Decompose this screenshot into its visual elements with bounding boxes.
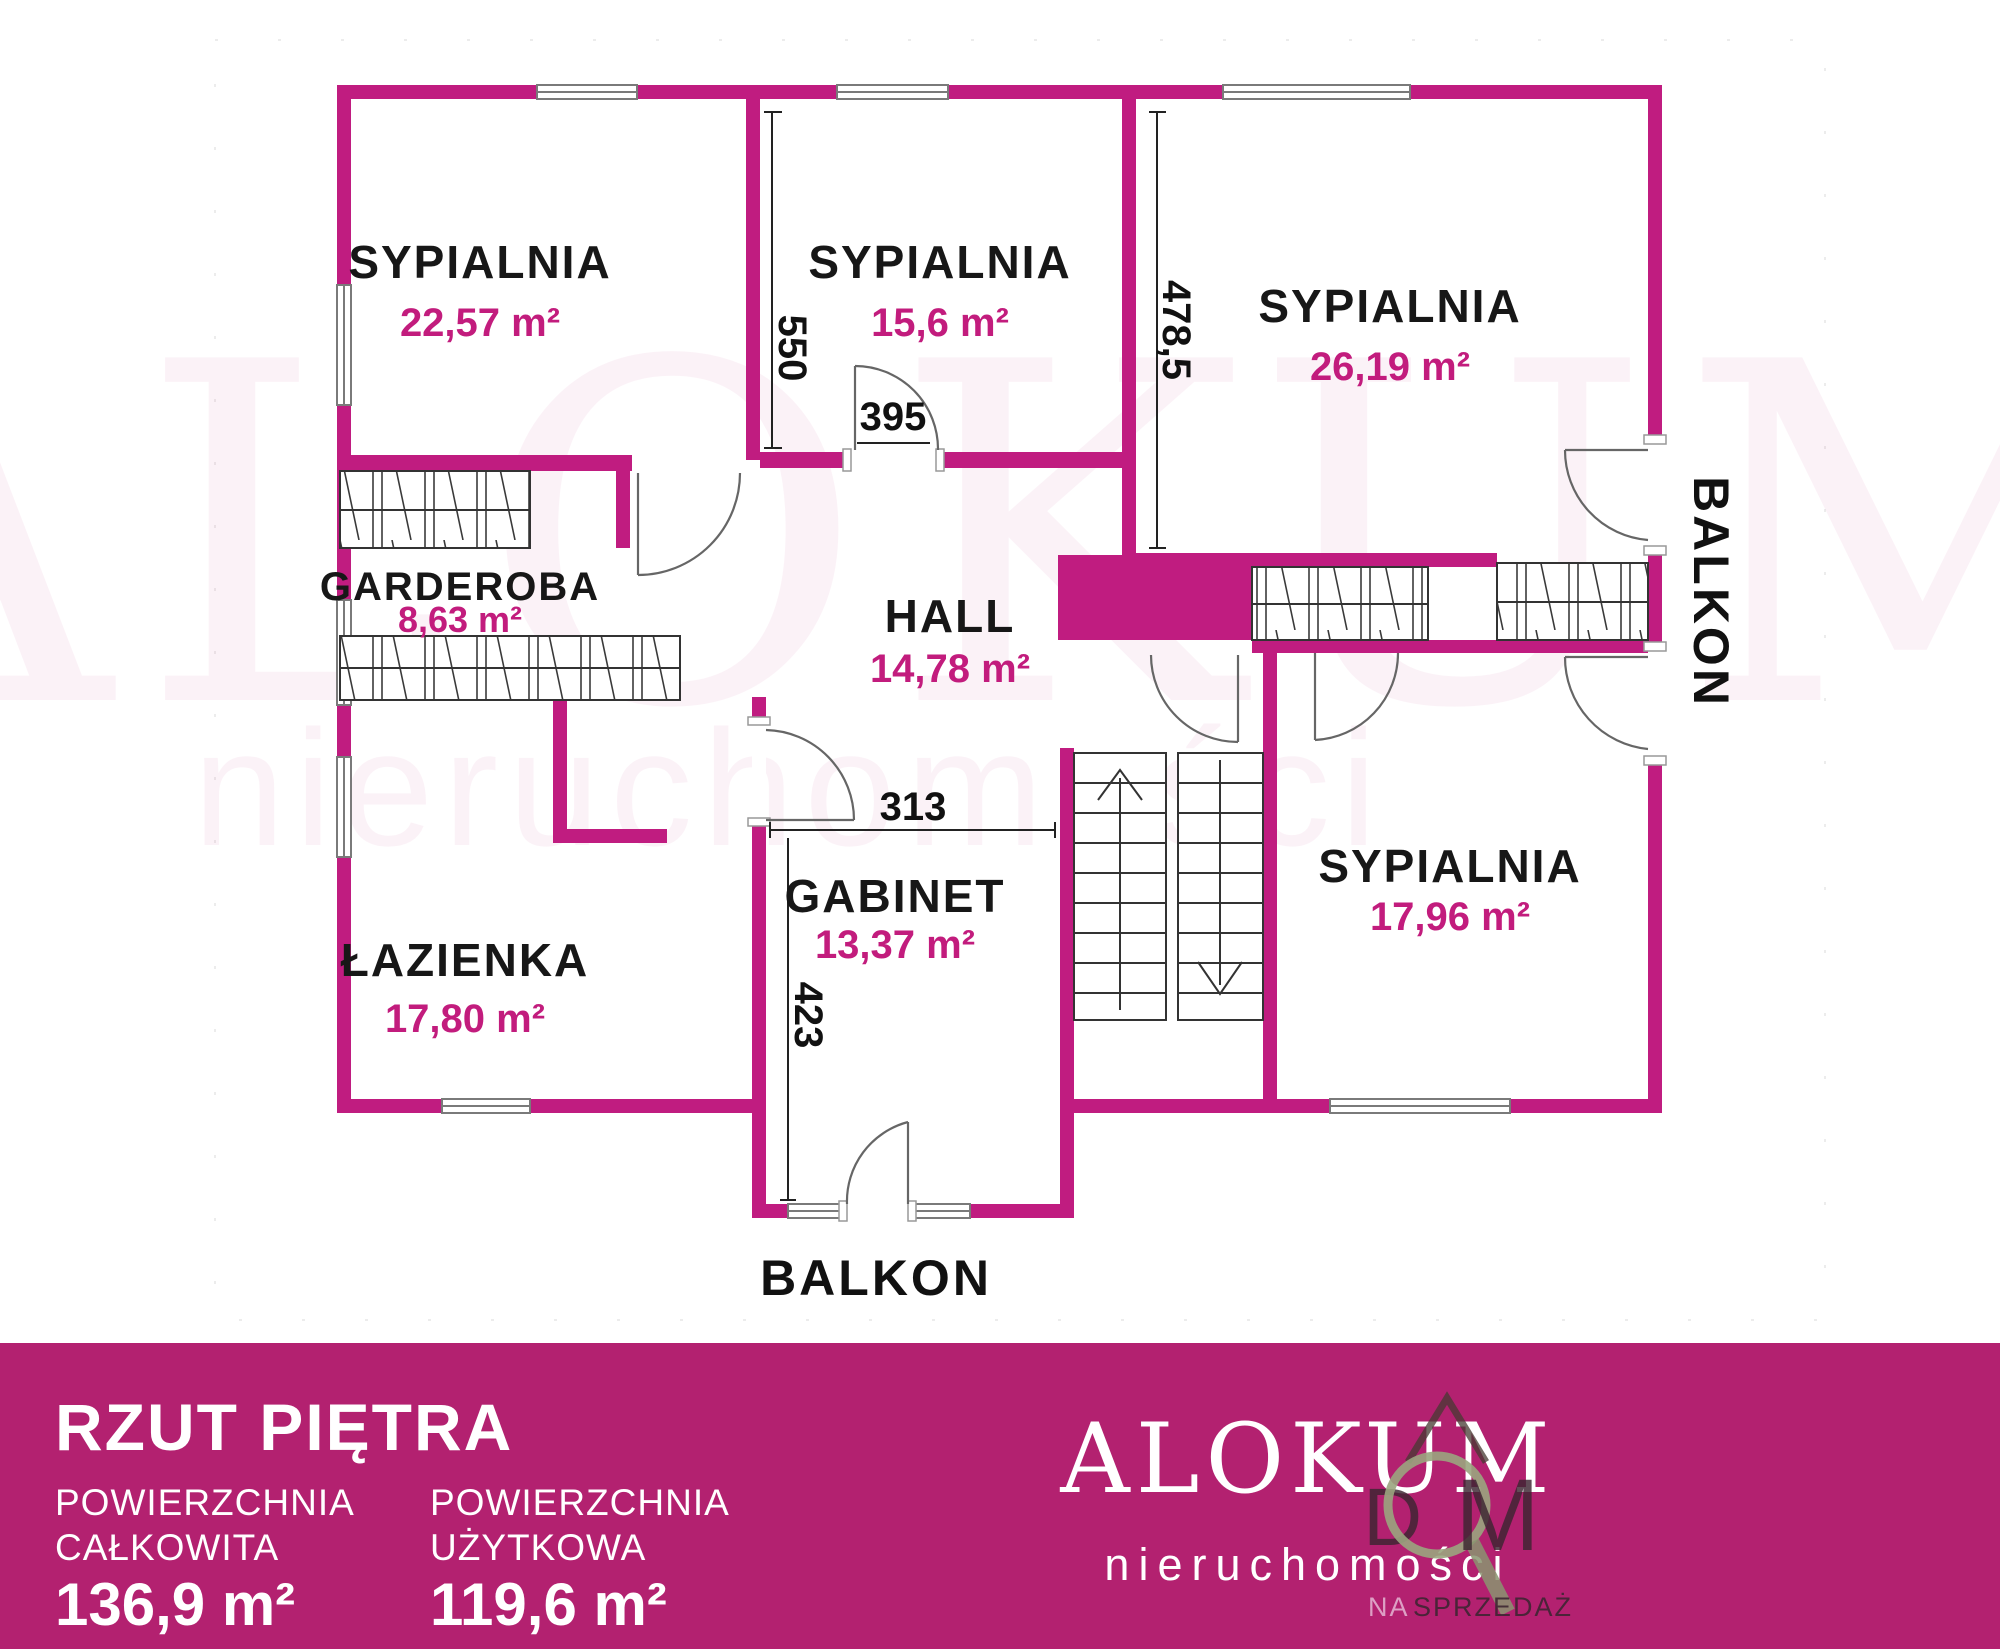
room-area-hall: 14,78 m² — [870, 647, 1030, 691]
door-gap-balcony-bedroom3 — [1648, 443, 1662, 547]
room-area-bathroom: 17,80 m² — [385, 997, 545, 1041]
dom-small-sprzedaz: SPRZEDAŻ — [1413, 1591, 1573, 1622]
window-bottom-bedroom4 — [1330, 1099, 1510, 1113]
wall-bedroom1-bottom — [337, 455, 632, 471]
balcony-label-right: BALKON — [1683, 476, 1739, 708]
room-name-bathroom: ŁAZIENKA — [341, 934, 590, 986]
wall-under-wardrobe2 — [1493, 640, 1648, 653]
metric-usable-label-line2: UŻYTKOWA — [430, 1527, 646, 1568]
wall-bottom-bathroom — [337, 1099, 766, 1113]
room-name-gabinet: GABINET — [785, 870, 1006, 922]
room-area-bedroom3: 26,19 m² — [1310, 345, 1470, 389]
dom-letter-m: M — [1455, 1458, 1540, 1572]
door-balcony-gabinet — [847, 1122, 908, 1204]
room-name-bedroom3: SYPIALNIA — [1258, 280, 1521, 332]
floor-plan-page: ALOKUM nieruchomości — [0, 0, 2000, 1649]
room-name-bedroom1: SYPIALNIA — [348, 236, 611, 288]
room-name-bedroom2: SYPIALNIA — [808, 236, 1071, 288]
wall-garderoba-stub — [616, 471, 630, 548]
metric-total-label-line1: POWIERZCHNIA — [55, 1482, 355, 1523]
wall-bedroom2-right — [1122, 99, 1136, 567]
window-top-bedroom2 — [837, 85, 948, 99]
wardrobe-corridor-left — [1252, 567, 1428, 640]
dimension-478-5: 478,5 — [1154, 280, 1198, 380]
dimension-423: 423 — [786, 982, 830, 1049]
wall-outer-right — [1648, 85, 1662, 1113]
wardrobe-corridor-right — [1497, 563, 1648, 640]
footer-bar: RZUT PIĘTRA POWIERZCHNIA CAŁKOWITA 136,9… — [0, 1343, 2000, 1649]
wall-bedroom2-bottom — [760, 452, 1136, 468]
footer-title: RZUT PIĘTRA — [55, 1390, 513, 1464]
dimension-395: 395 — [860, 395, 927, 439]
wardrobe-garderoba-bottom — [340, 636, 680, 700]
brand-subtitle: nieruchomości — [1104, 1539, 1511, 1590]
room-name-hall: HALL — [885, 590, 1016, 642]
balcony-label-bottom: BALKON — [760, 1250, 992, 1306]
room-area-bedroom4: 17,96 m² — [1370, 895, 1530, 939]
wall-stairs-right — [1263, 650, 1277, 1113]
dom-small-na: NA — [1368, 1592, 1410, 1622]
window-left-bedroom1 — [337, 285, 351, 405]
wall-bathroom-L-vertical — [553, 697, 567, 843]
dimension-313: 313 — [880, 785, 947, 829]
dimension-550: 550 — [770, 315, 814, 382]
room-name-bedroom4: SYPIALNIA — [1318, 840, 1581, 892]
wall-bedroom4-top-right — [1400, 640, 1493, 653]
wall-outer-top — [337, 85, 1662, 99]
window-top-bedroom1 — [537, 85, 637, 99]
room-area-gabinet: 13,37 m² — [815, 923, 975, 967]
window-bottom-gabinet-right — [912, 1204, 970, 1218]
metric-usable-label-line1: POWIERZCHNIA — [430, 1482, 730, 1523]
wall-bathroom-L-horizontal — [553, 829, 667, 843]
metric-total-label-line2: CAŁKOWITA — [55, 1527, 279, 1568]
wall-bedroom4-top-left — [1277, 640, 1310, 653]
room-area-bedroom1: 22,57 m² — [400, 301, 560, 345]
wall-stairs-left — [1060, 748, 1074, 1218]
window-top-bedroom3 — [1223, 85, 1410, 99]
door-gap-hall-gabinet — [752, 723, 766, 820]
window-bottom-gabinet-left — [788, 1204, 845, 1218]
room-area-garderoba: 8,63 m² — [398, 599, 522, 640]
window-left-bathroom — [337, 757, 351, 857]
wall-block-hall — [1058, 555, 1252, 640]
door-gap-balcony-bedroom4 — [1648, 650, 1662, 757]
floor-plan-canvas: ALOKUM nieruchomości — [0, 0, 2000, 1649]
metric-total-value: 136,9 m² — [55, 1571, 295, 1638]
door-gap-bedroom2 — [849, 452, 938, 468]
wardrobe-garderoba-top — [340, 471, 530, 548]
window-bottom-bathroom — [442, 1099, 530, 1113]
metric-usable-value: 119,6 m² — [430, 1571, 667, 1638]
door-gap-balcony-gabinet — [845, 1204, 912, 1218]
room-area-bedroom2: 15,6 m² — [871, 301, 1009, 345]
wall-bedroom1-bedroom2 — [746, 99, 760, 460]
